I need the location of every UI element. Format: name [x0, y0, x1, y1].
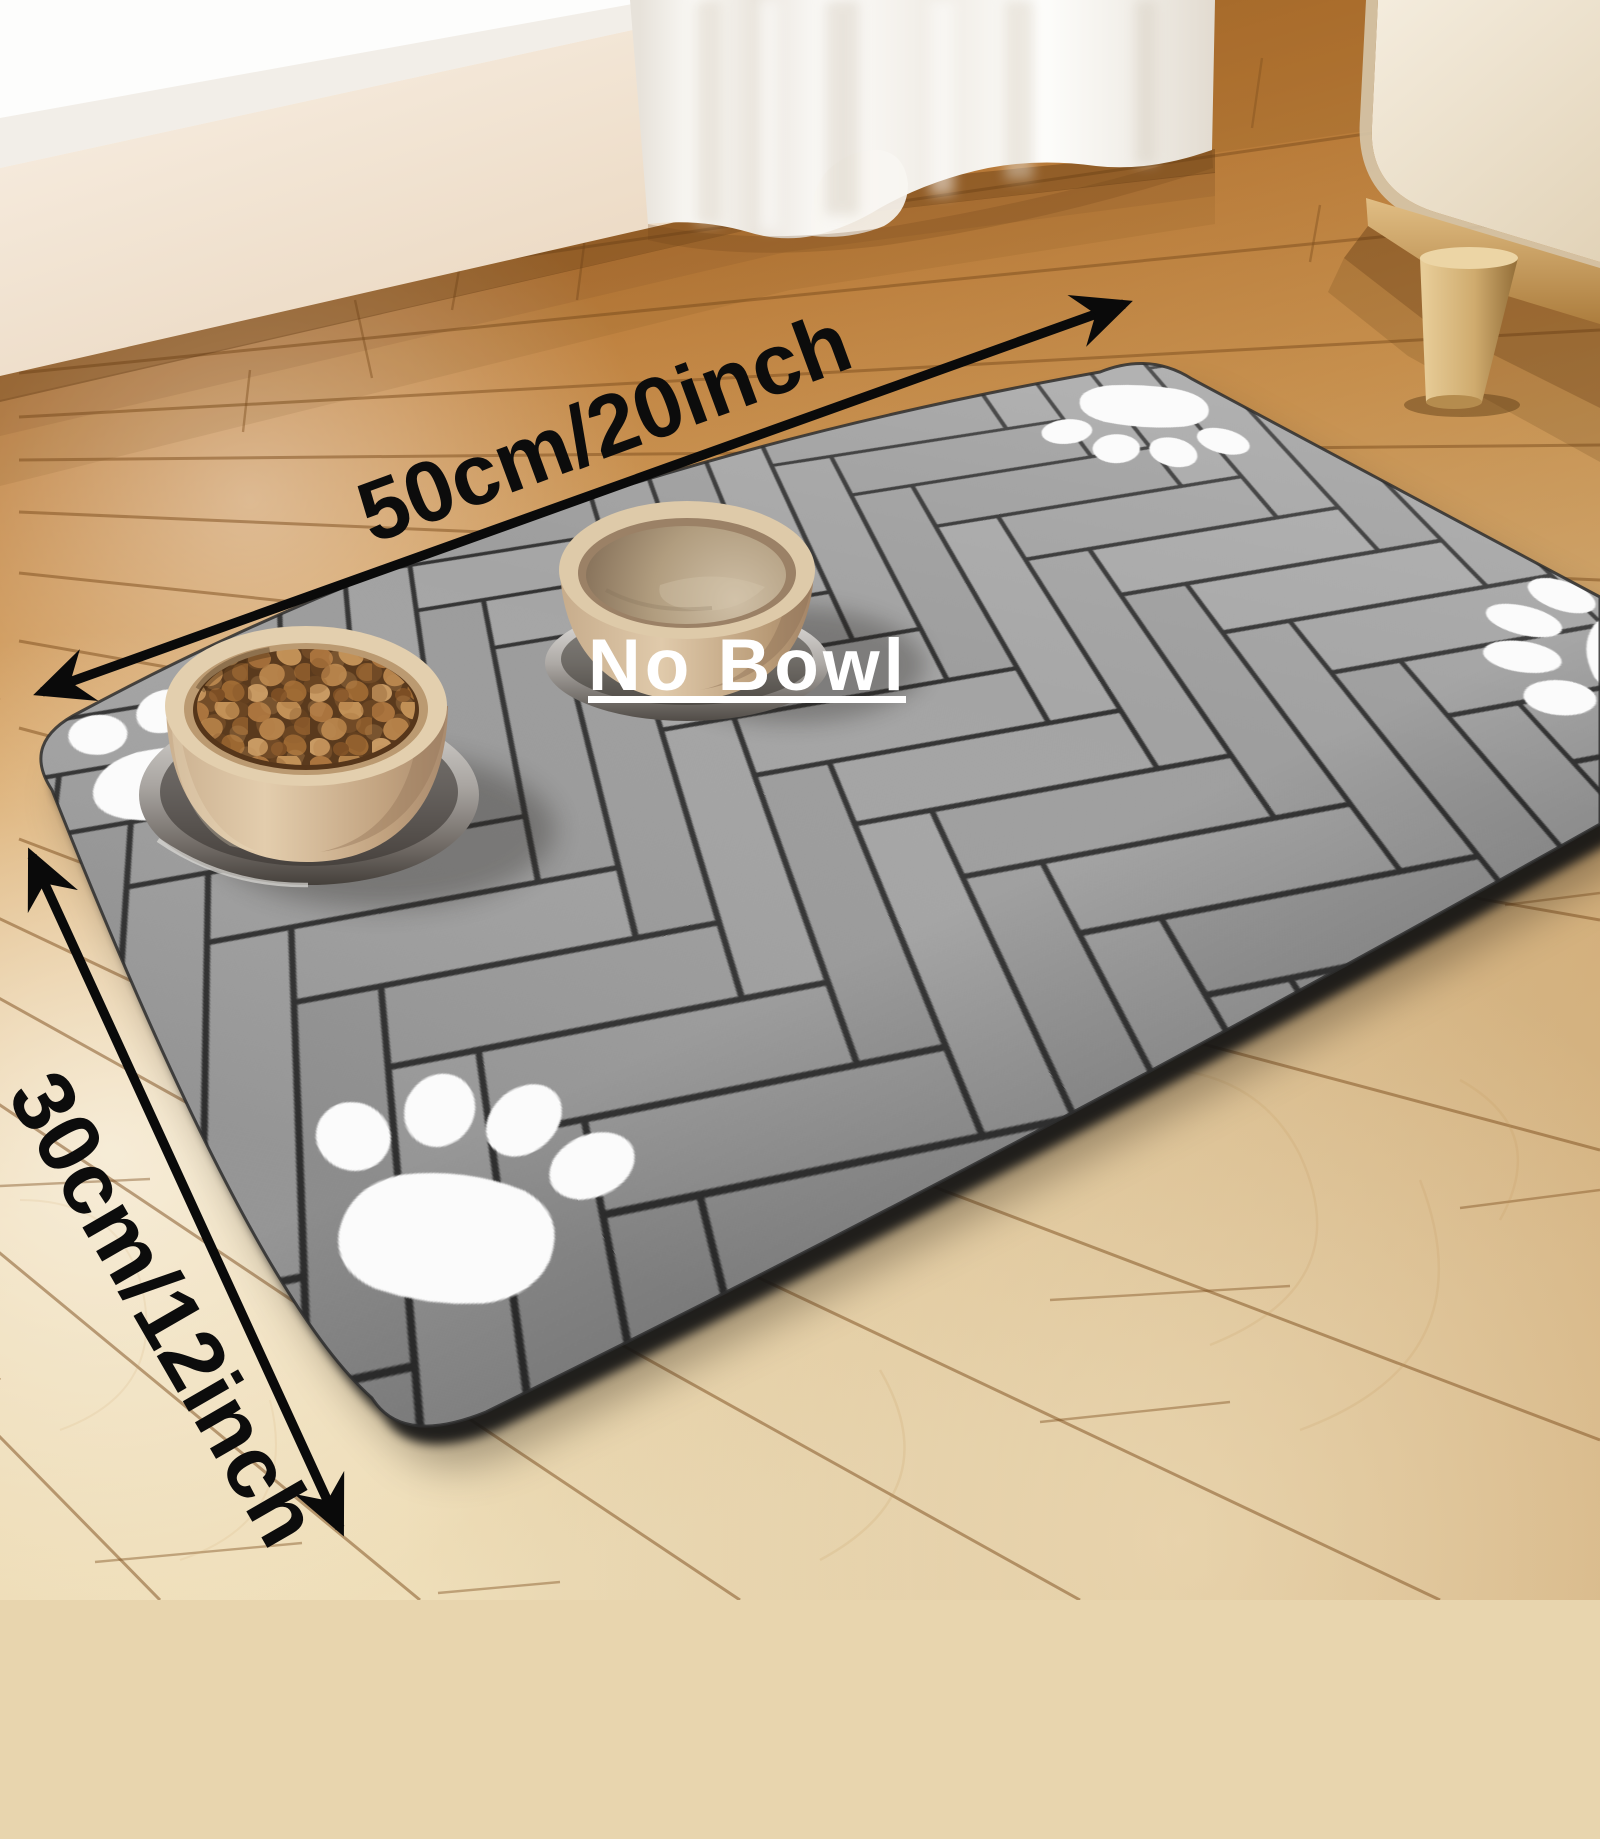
svg-text:30cm/12inch: 30cm/12inch: [0, 1055, 339, 1562]
svg-text:No Bowl: No Bowl: [588, 625, 908, 706]
